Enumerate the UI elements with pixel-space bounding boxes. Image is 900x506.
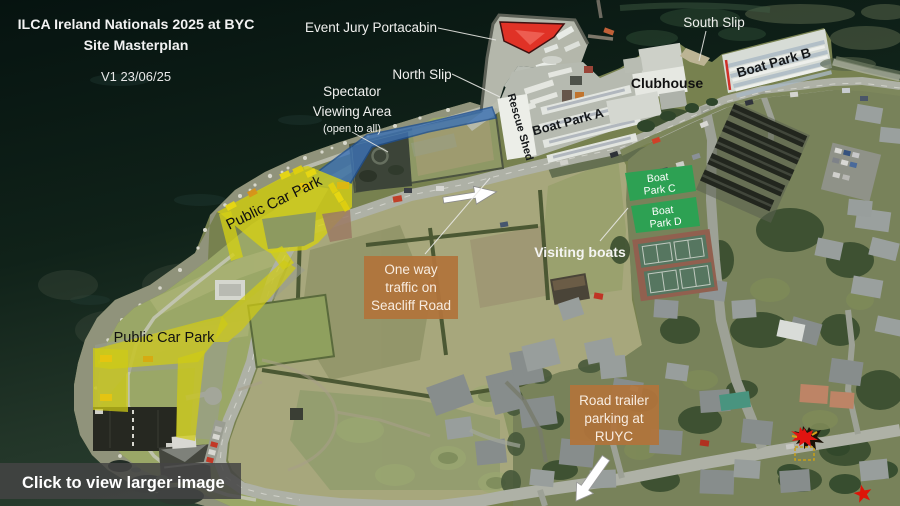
svg-text:North Slip: North Slip: [392, 67, 451, 82]
svg-text:Road trailer: Road trailer: [579, 393, 649, 408]
svg-text:Viewing Area: Viewing Area: [313, 104, 392, 119]
svg-text:(open to all): (open to all): [323, 123, 381, 135]
svg-text:Public Car Park: Public Car Park: [114, 330, 215, 346]
svg-text:parking at: parking at: [584, 411, 644, 426]
svg-text:RUYC: RUYC: [595, 429, 634, 444]
svg-text:traffic on: traffic on: [385, 280, 437, 295]
svg-text:Click to view larger image: Click to view larger image: [22, 474, 225, 492]
svg-text:Clubhouse: Clubhouse: [631, 75, 704, 91]
svg-text:Spectator: Spectator: [323, 84, 381, 99]
svg-text:V1 23/06/25: V1 23/06/25: [101, 69, 171, 84]
svg-text:Event Jury Portacabin: Event Jury Portacabin: [305, 20, 437, 35]
svg-text:ILCA Ireland Nationals 2025 at: ILCA Ireland Nationals 2025 at BYC: [18, 17, 255, 33]
svg-text:Site Masterplan: Site Masterplan: [84, 38, 189, 54]
svg-text:Seacliff Road: Seacliff Road: [371, 298, 451, 313]
svg-text:One way: One way: [384, 262, 438, 277]
svg-text:South Slip: South Slip: [683, 15, 745, 30]
svg-text:Visiting boats: Visiting boats: [534, 244, 626, 260]
